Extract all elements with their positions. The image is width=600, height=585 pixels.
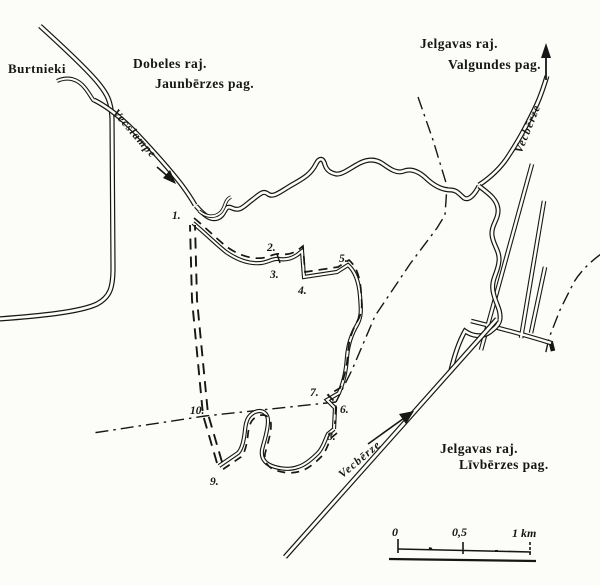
boundary-point-1: 1.: [172, 210, 181, 222]
nw-parish-label: Jaunbērzes pag.: [155, 76, 254, 91]
district-boundary-east-segment: [545, 254, 600, 356]
vecberze-upper-river: [479, 76, 547, 185]
upper-river-meander: [196, 159, 479, 218]
boundary-point-10: 10.: [190, 405, 204, 417]
reserve-boundary-dashes-loop: [222, 415, 337, 473]
boundary-point-3: 3.: [269, 269, 279, 281]
boundary-point-7: 7.: [310, 387, 319, 399]
settlement-label: Burtnieki: [8, 61, 66, 76]
nw-district-label: Dobeles raj.: [133, 56, 207, 71]
scale-one-km-label: 1 km: [512, 526, 536, 540]
boundary-point-4: 4.: [297, 285, 307, 297]
reserve-ditch-north: [193, 218, 362, 429]
vecslampe-river-label: Vecslampe: [110, 107, 159, 161]
vecberze-upper-river-label: Vecbērze: [513, 103, 543, 155]
boundary-point-5: 5.: [339, 253, 348, 265]
ne-district-label: Jelgavas raj.: [420, 36, 498, 51]
scale-zero-label: 0: [392, 525, 398, 539]
se-parish-label: Līvbērzes pag.: [459, 457, 549, 472]
district-boundary-north-segment: [336, 97, 447, 402]
reserve-ditch-loop: [219, 411, 337, 473]
reserve-boundary-west-dashed: [190, 225, 222, 463]
vecberze-canal: [285, 319, 497, 557]
burtnieki-spur-road: [57, 79, 94, 101]
map-drawing: Burtnieki Dobeles raj. Jaunbērzes pag. J…: [0, 0, 600, 585]
scale-bar: 0 0,5 1 km: [389, 525, 536, 561]
se-district-label: Jelgavas raj.: [440, 441, 518, 456]
north-flow-arrow: [541, 43, 551, 80]
boundary-point-8: 8.: [327, 431, 336, 443]
boundary-point-9: 9.: [210, 476, 219, 488]
scanned-map-page: Burtnieki Dobeles raj. Jaunbērzes pag. J…: [0, 0, 600, 585]
boundary-point-6: 6.: [340, 404, 349, 416]
boundary-point-2: 2.: [266, 242, 276, 254]
scale-half-label: 0,5: [452, 525, 467, 539]
district-boundary-west-segment: [93, 402, 336, 433]
ne-parish-label: Valgundes pag.: [448, 57, 541, 72]
